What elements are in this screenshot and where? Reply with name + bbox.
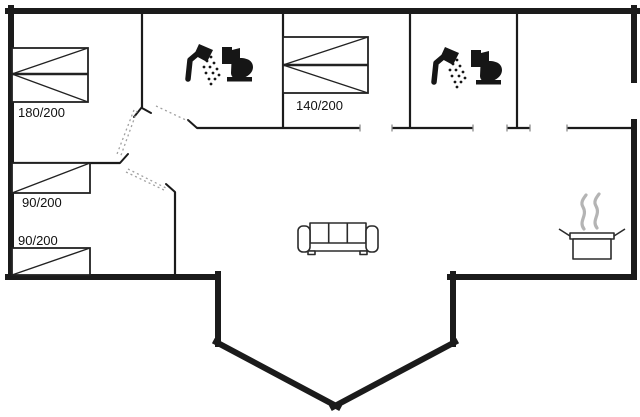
steam-icon [582,194,599,229]
door-leaf-bedroom3 [126,169,166,190]
room-bathroom-2 [434,47,502,88]
room-bedroom-bottom-left: 90/200 90/200 [12,163,90,275]
shower-icon [188,44,220,85]
bay-diagonal-right [333,342,455,407]
single-bed-icon-upper [12,163,90,193]
floor-plan-page: 180/200 140/200 90/200 90/200 [0,0,640,417]
room-kitchen [559,194,625,259]
double-bed-icon [12,48,88,102]
floor-plan: 180/200 140/200 90/200 90/200 [0,0,640,417]
door-jambs [120,107,197,192]
sofa-icon [298,223,378,255]
shower-icon [434,47,466,88]
toilet-icon [222,47,253,82]
bed-size-label: 140/200 [296,98,343,113]
bed-size-label-upper: 90/200 [22,195,62,210]
bay-diagonal-left [216,342,338,407]
door-leaf-bathroom1 [156,106,188,121]
room-bathroom-1 [188,44,253,85]
toilet-icon [471,50,502,85]
bed-size-label: 180/200 [18,105,65,120]
room-bedroom-top-left: 180/200 [12,48,88,120]
room-living [298,223,378,255]
single-bed-icon-lower [12,248,90,275]
double-bed-icon [283,37,368,93]
cooking-pot-icon [559,229,625,259]
door-openings [117,106,567,192]
room-bedroom-top-middle: 140/200 [283,37,368,113]
bed-size-label-lower: 90/200 [18,233,58,248]
